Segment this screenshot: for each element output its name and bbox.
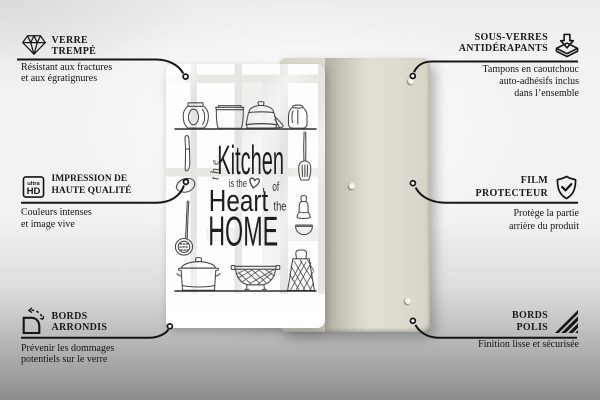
svg-text:HD: HD <box>27 186 41 197</box>
